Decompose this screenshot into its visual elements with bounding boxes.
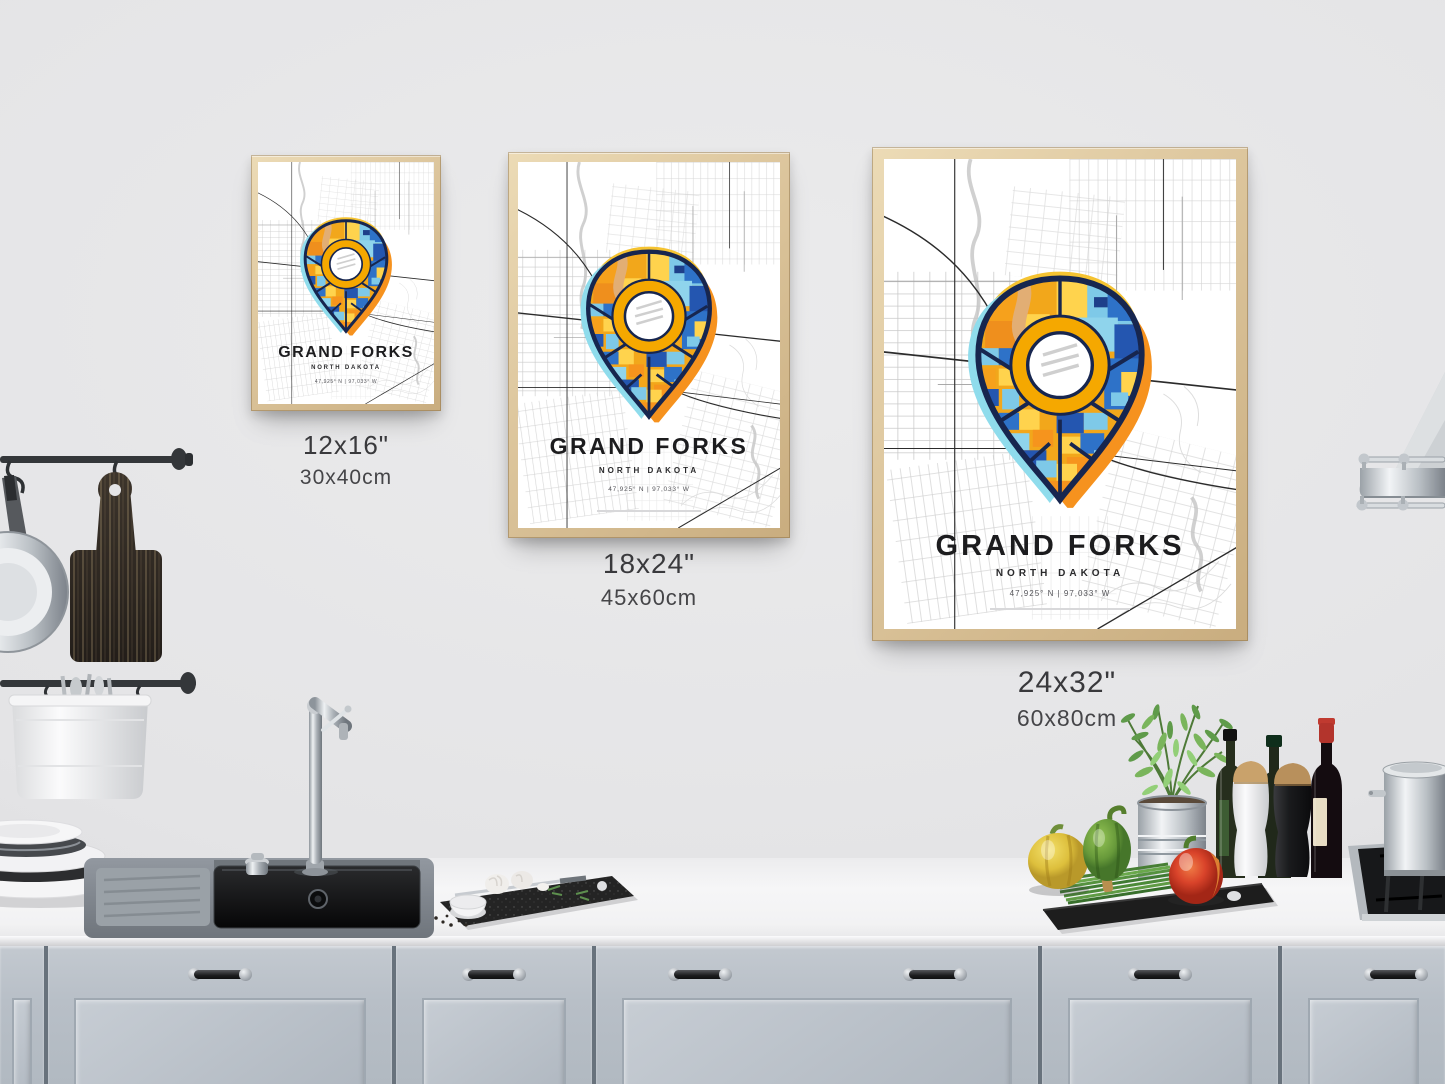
- wall-rail-top: [0, 448, 193, 470]
- poster-print: GRAND FORKS NORTH DAKOTA 47,925° N | 97,…: [884, 159, 1236, 629]
- cabinet-door-panel: [422, 998, 566, 1084]
- cabinet-door: [396, 946, 592, 1084]
- handle-cap: [513, 968, 526, 981]
- cabinet-handle: [462, 968, 526, 981]
- cutlery: [61, 674, 113, 702]
- cabinet-handle: [1128, 968, 1192, 981]
- oil-bottle-2: [1258, 735, 1291, 878]
- handle-cap: [239, 968, 252, 981]
- hanging-frying-pan: [0, 475, 68, 652]
- poster-city-title: GRAND FORKS: [518, 433, 780, 460]
- size-inches: 24x32": [872, 666, 1262, 700]
- wine-bottle: [1311, 718, 1342, 878]
- utensil-caddy: [9, 674, 151, 799]
- handle-cap: [954, 968, 967, 981]
- poster-coordinates: 47,925° N | 97,033° W: [258, 379, 434, 385]
- poster-state-subtitle: NORTH DAKOTA: [258, 365, 434, 371]
- framed-map-poster-large: GRAND FORKS NORTH DAKOTA 47,925° N | 97,…: [872, 147, 1248, 641]
- handle-cap: [1179, 968, 1192, 981]
- cabinet-handle: [188, 968, 252, 981]
- kitchen-cabinets: [0, 946, 1445, 1084]
- size-label-small: 12x16" 30x40cm: [251, 430, 441, 490]
- poster-print: GRAND FORKS NORTH DAKOTA 47,925° N | 97,…: [258, 162, 434, 404]
- size-inches: 18x24": [508, 548, 790, 580]
- cabinet-handle: [903, 968, 967, 981]
- map-pin-icon: [573, 245, 725, 422]
- handle-cap: [1415, 968, 1428, 981]
- hanging-cutting-board: [60, 466, 180, 676]
- oil-bottle: [1216, 729, 1245, 878]
- kitchen-wall-mockup-photo: GRAND FORKS NORTH DAKOTA 47,925° N | 97,…: [0, 0, 1445, 1084]
- countertop-front-edge: [0, 936, 1445, 946]
- s-hook: [7, 461, 130, 493]
- cabinet-door-panel: [12, 998, 32, 1084]
- size-cm: 60x80cm: [872, 705, 1262, 732]
- poster-coordinates: 47,925° N | 97,033° W: [884, 589, 1236, 598]
- size-inches: 12x16": [251, 430, 441, 461]
- print-credit-microtext: [597, 510, 702, 512]
- cabinet-handle: [1364, 968, 1428, 981]
- size-label-large: 24x32" 60x80cm: [872, 666, 1262, 732]
- size-label-medium: 18x24" 45x60cm: [508, 548, 790, 611]
- wall-rail-bottom: [0, 672, 196, 694]
- print-credit-microtext: [990, 608, 1131, 610]
- map-pin-icon: [958, 270, 1162, 508]
- framed-map-poster-small: GRAND FORKS NORTH DAKOTA 47,925° N | 97,…: [251, 155, 441, 411]
- cabinet-handle: [668, 968, 732, 981]
- poster-city-title: GRAND FORKS: [884, 530, 1236, 563]
- cabinet-door: [48, 946, 392, 1084]
- cabinet-door: [1282, 946, 1445, 1084]
- cabinet-door-panel: [1068, 998, 1252, 1084]
- cabinet-door-panel: [622, 998, 1012, 1084]
- poster-city-title: GRAND FORKS: [258, 344, 434, 362]
- countertop: [0, 858, 1445, 946]
- cabinet-door-panel: [74, 998, 366, 1084]
- map-pin-icon: [295, 216, 397, 335]
- faucet: [294, 698, 352, 876]
- poster-state-subtitle: NORTH DAKOTA: [884, 568, 1236, 579]
- cabinet-door: [1042, 946, 1278, 1084]
- poster-print: GRAND FORKS NORTH DAKOTA 47,925° N | 97,…: [518, 162, 780, 528]
- handle-cap: [719, 968, 732, 981]
- poster-coordinates: 47,925° N | 97,033° W: [518, 486, 780, 493]
- cabinet-door: [0, 946, 44, 1084]
- framed-map-poster-medium: GRAND FORKS NORTH DAKOTA 47,925° N | 97,…: [508, 152, 790, 538]
- range-hood: [1357, 372, 1445, 511]
- size-cm: 45x60cm: [508, 585, 790, 611]
- cabinet-door-panel: [1308, 998, 1419, 1084]
- hood-rail: [1357, 454, 1445, 511]
- poster-state-subtitle: NORTH DAKOTA: [518, 466, 780, 475]
- cabinet-drawer: [596, 946, 1038, 1084]
- size-cm: 30x40cm: [251, 466, 441, 490]
